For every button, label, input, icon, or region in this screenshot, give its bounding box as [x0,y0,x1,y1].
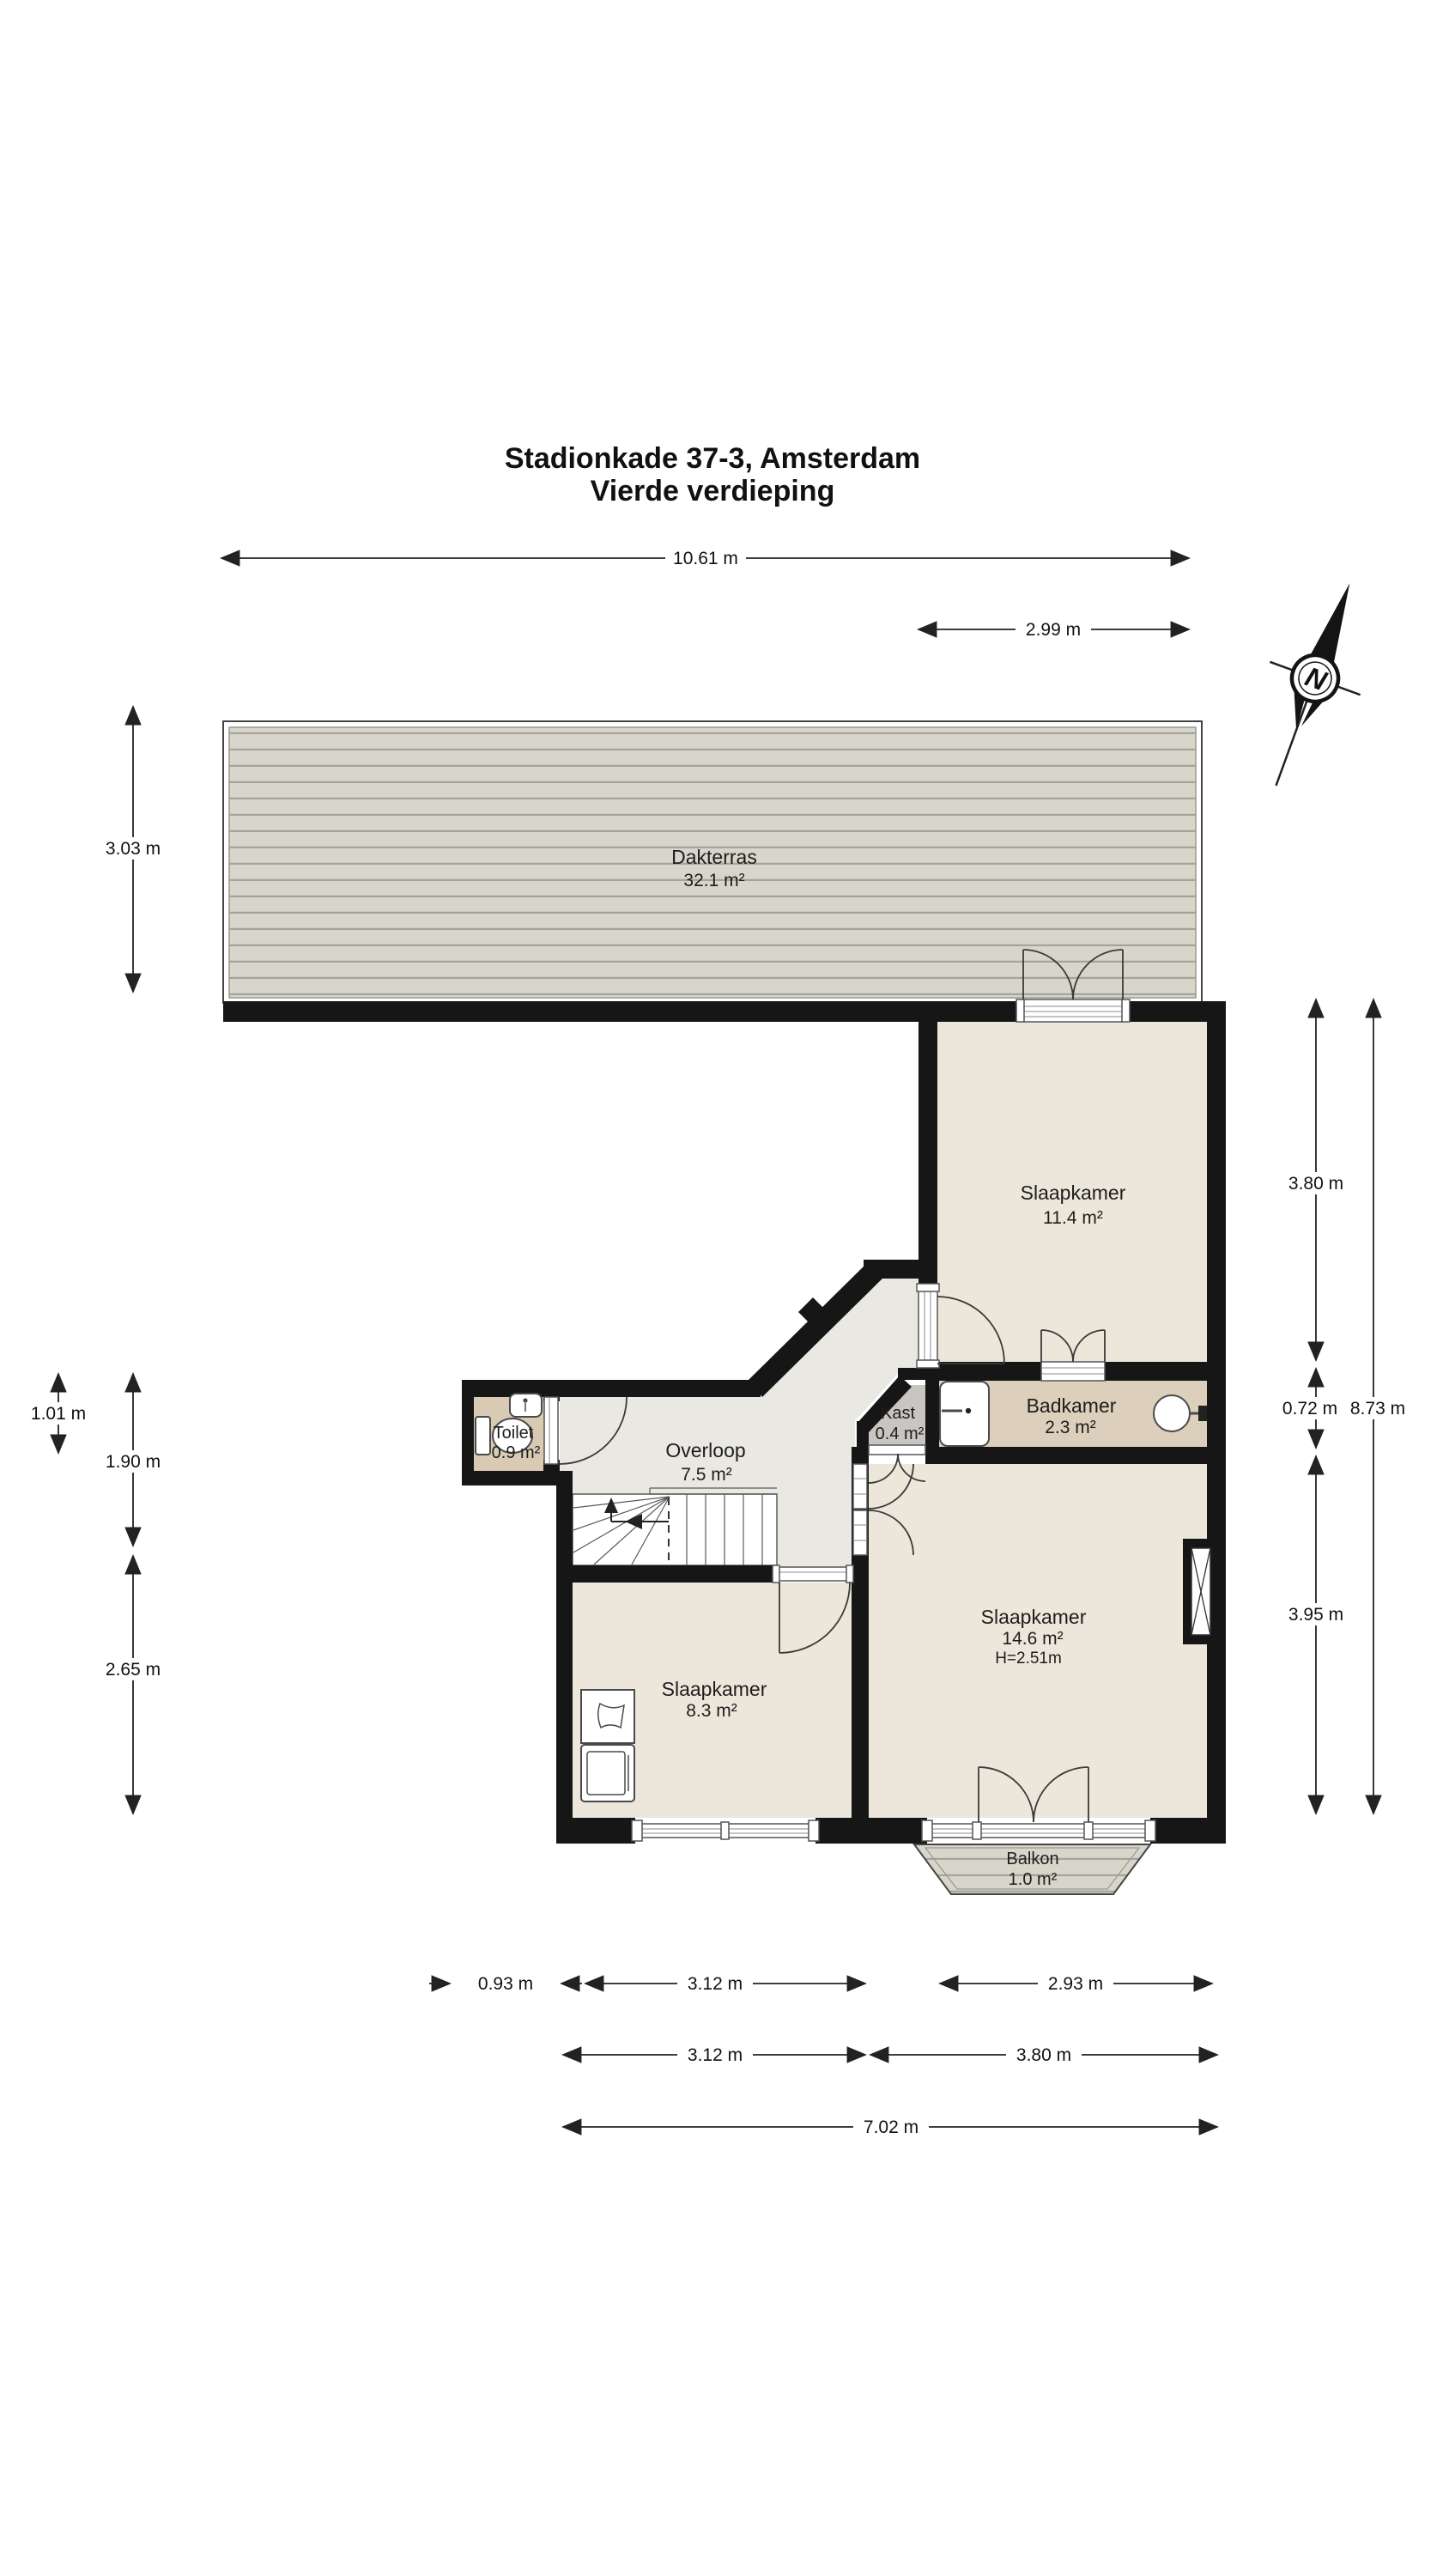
dim-top-total: 10.61 m [673,549,738,568]
label-slaapkamer8-area: 8.3 m² [686,1701,737,1721]
dim-bottom2-right: 3.80 m [1016,2045,1071,2065]
dim-bottom-total: 7.02 m [864,2117,919,2137]
wall-toilet-left [462,1380,474,1485]
slaapkamer8-door-threshold [777,1567,850,1581]
title-line2: Vierde verdieping [591,475,835,507]
label-kast-area: 0.4 m² [876,1425,925,1443]
appliance-washer [581,1745,634,1801]
dim-left-lower: 2.65 m [106,1660,161,1680]
label-slaapkamer14-height: H=2.51m [995,1649,1062,1668]
slaapkamer11-door-threshold [919,1290,937,1362]
title-line1: Stadionkade 37-3, Amsterdam [505,442,920,475]
badkamer-door-threshold [1041,1362,1105,1381]
frenchdoor-leaf-upper [853,1464,867,1509]
label-badkamer-area: 2.3 m² [1045,1418,1096,1437]
dim-left-mid: 1.90 m [106,1452,161,1472]
label-slaapkamer11-area: 11.4 m² [1043,1208,1103,1228]
label-slaapkamer14: Slaapkamer [981,1606,1087,1628]
label-slaapkamer8: Slaapkamer [662,1678,767,1700]
dim-right-upper: 3.80 m [1288,1174,1343,1194]
badkamer-sink [1154,1395,1190,1431]
dim-right-bath: 0.72 m [1282,1399,1337,1419]
shower [940,1382,989,1446]
wall-bottom-a [556,1818,635,1844]
label-slaapkamer11: Slaapkamer [1021,1182,1126,1204]
wall-overloop-top [462,1380,761,1397]
toilet-tank [476,1417,490,1455]
dim-left-terrace: 3.03 m [106,839,161,859]
wall-between-bedrooms [852,1583,869,1825]
label-toilet: Toilet [494,1424,534,1443]
label-badkamer: Badkamer [1027,1394,1117,1417]
label-overloop: Overloop [665,1439,745,1461]
dim-bottom2-left: 3.12 m [688,2045,743,2065]
label-balkon-area: 1.0 m² [1009,1870,1058,1889]
label-overloop-area: 7.5 m² [681,1465,732,1485]
wall-bottom-c [1150,1818,1226,1844]
dim-left-toilet: 1.01 m [31,1404,86,1424]
page-title: Stadionkade 37-3, Amsterdam Vierde verdi… [505,442,920,507]
dim-top-right: 2.99 m [1026,620,1081,640]
badkamer-sink-tap [1198,1406,1207,1421]
compass-tail [1276,701,1307,786]
label-kast: Kast [881,1404,915,1423]
wall-bottom-b [815,1818,927,1844]
wall-badkamer-bottom [937,1447,1207,1464]
staircase [573,1488,777,1565]
floor-plan: Stadionkade 37-3, Amsterdam Vierde verdi… [0,0,1449,2576]
kast-door-threshold [869,1445,925,1455]
wall-left-main [556,1471,573,1844]
compass-icon: N [1231,567,1395,802]
dim-bottom-room-right: 2.93 m [1048,1974,1103,1994]
wall-kast-right [925,1368,939,1464]
terrace-door-threshold [1023,999,1123,1022]
toilet-door-threshold [544,1397,558,1464]
wall-stairs-bottom-left [556,1565,777,1583]
wall-toilet-bottom [462,1471,562,1485]
wall-right [1207,1001,1226,1844]
label-dakterras: Dakterras [671,846,757,868]
dim-bottom-offset: 0.93 m [478,1974,533,1994]
label-slaapkamer14-area: 14.6 m² [1002,1629,1063,1649]
dim-right-total: 8.73 m [1350,1399,1405,1419]
frenchdoor-leaf-lower [853,1510,867,1555]
label-dakterras-area: 32.1 m² [683,871,744,890]
dim-bottom-room-left: 3.12 m [688,1974,743,1994]
appliance-top [581,1690,634,1743]
dim-right-lower: 3.95 m [1288,1605,1343,1625]
label-toilet-area: 0.9 m² [492,1443,541,1462]
label-balkon: Balkon [1006,1850,1058,1868]
wall-slaapkamer11-left [919,1001,937,1290]
balcony-glazing [927,1824,1150,1838]
